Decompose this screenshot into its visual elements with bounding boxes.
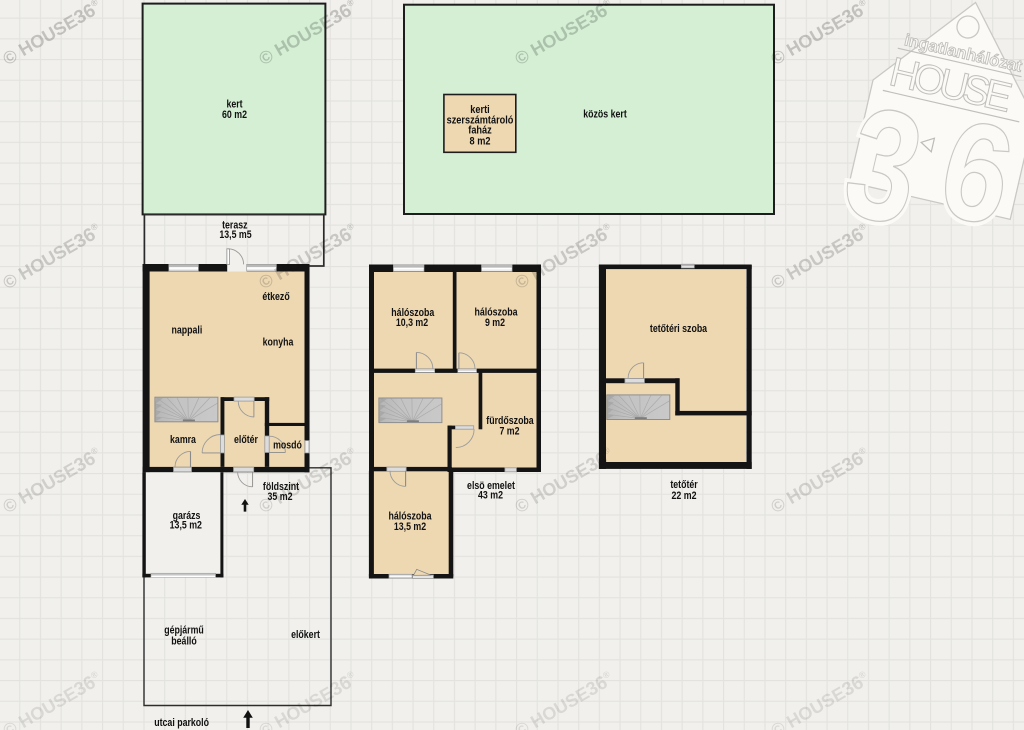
svg-text:43 m2: 43 m2 — [478, 490, 503, 502]
svg-text:13,5 m2: 13,5 m2 — [170, 520, 203, 532]
svg-text:előtér: előtér — [234, 434, 258, 446]
svg-text:beálló: beálló — [171, 635, 196, 647]
svg-text:kamra: kamra — [170, 434, 196, 446]
svg-text:tetőtéri szoba: tetőtéri szoba — [650, 323, 708, 335]
svg-text:mosdó: mosdó — [273, 440, 302, 452]
svg-text:9 m2: 9 m2 — [485, 317, 505, 329]
svg-text:8 m2: 8 m2 — [470, 136, 491, 148]
svg-text:konyha: konyha — [263, 337, 294, 349]
svg-text:13,5 m2: 13,5 m2 — [394, 521, 427, 533]
svg-text:7 m2: 7 m2 — [499, 426, 519, 438]
svg-text:étkező: étkező — [262, 291, 289, 303]
svg-text:nappali: nappali — [172, 325, 203, 337]
svg-text:60 m2: 60 m2 — [222, 109, 247, 121]
svg-text:10,3 m2: 10,3 m2 — [396, 317, 429, 329]
svg-text:előkert: előkert — [291, 629, 320, 641]
svg-text:13,5 m5: 13,5 m5 — [219, 229, 252, 241]
svg-text:közös kert: közös kert — [583, 109, 627, 121]
svg-text:utcai parkoló: utcai parkoló — [154, 717, 209, 729]
svg-text:22 m2: 22 m2 — [672, 490, 697, 502]
